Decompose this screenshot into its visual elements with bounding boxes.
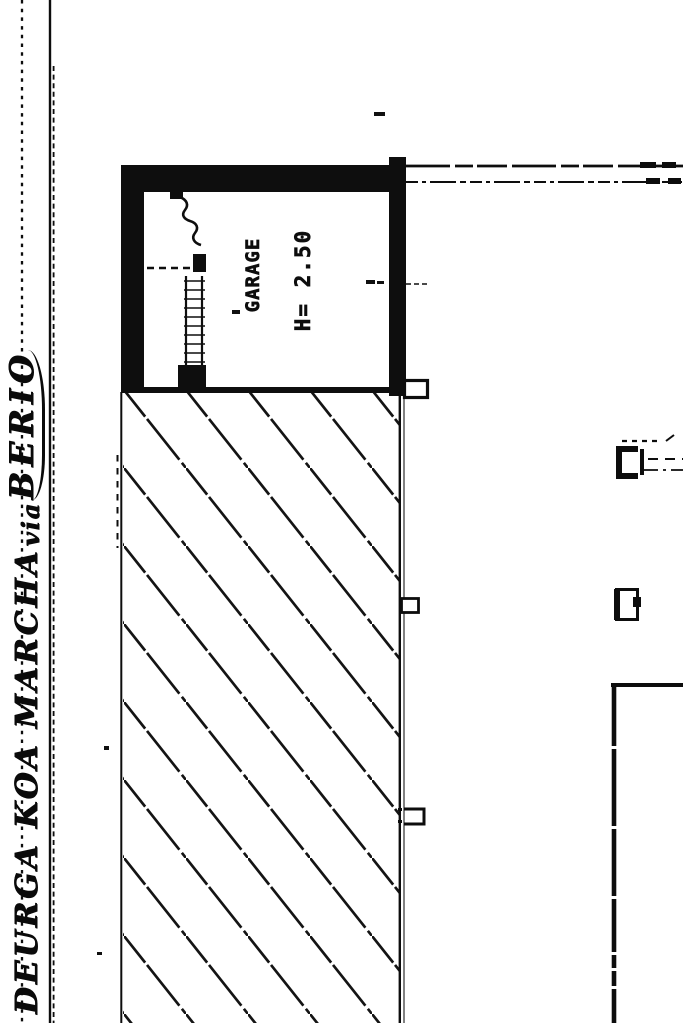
garage-room-label: GARAGE	[239, 224, 267, 326]
scanned-floor-plan-sheet: GARAGE H= 2.50 DEURGA KOA MARCHA via BER…	[0, 0, 683, 1023]
garage-height-label: H= 2.50	[286, 223, 320, 337]
handwritten-street-name: BERIO	[2, 350, 45, 500]
stair-ladder	[184, 276, 205, 368]
building-outline-corner	[610, 683, 683, 1023]
handwritten-via-label: via	[16, 502, 45, 547]
floor-plan-linework	[0, 0, 683, 1023]
edge-tab-markers	[398, 381, 428, 825]
tab-marker-middle	[402, 599, 419, 613]
tab-marker-top	[405, 381, 428, 398]
small-rect-symbol	[614, 589, 641, 620]
pillar-symbol	[616, 435, 683, 479]
tab-marker-bottom	[404, 809, 424, 824]
hatched-ramp	[118, 392, 405, 1023]
door-swing	[180, 197, 201, 245]
boundary-lines	[406, 166, 683, 182]
handwritten-annotation: DEURGA KOA MARCHA via BERIO	[2, 350, 48, 1014]
handwritten-names: DEURGA KOA MARCHA	[9, 548, 45, 1014]
garage-interior	[135, 197, 429, 368]
